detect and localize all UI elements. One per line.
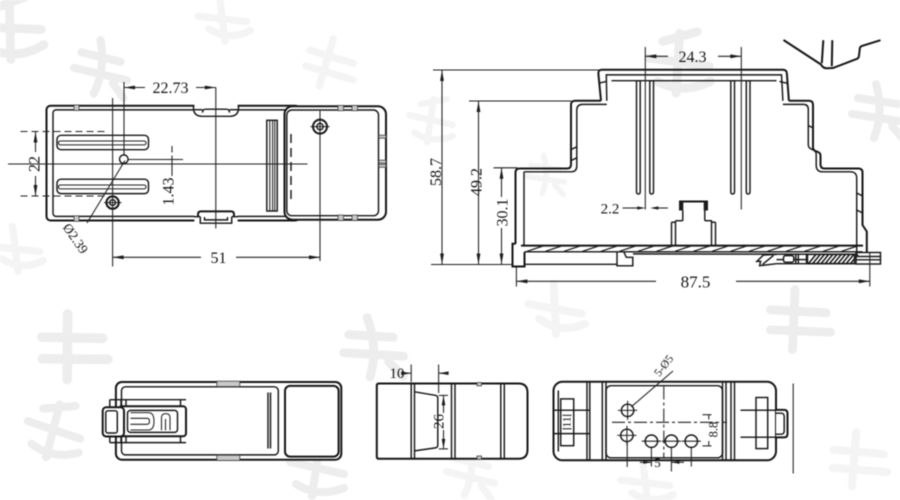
svg-text:49.2: 49.2 [469, 168, 486, 196]
svg-text:87.5: 87.5 [681, 273, 711, 292]
svg-text:1.43: 1.43 [161, 178, 178, 206]
svg-text:5: 5 [654, 455, 661, 470]
svg-text:2.2: 2.2 [601, 202, 620, 218]
svg-text:10: 10 [390, 366, 405, 382]
svg-text:30.1: 30.1 [495, 199, 512, 227]
svg-text:22: 22 [27, 156, 44, 172]
svg-text:11: 11 [562, 416, 574, 427]
svg-text:51: 51 [211, 250, 227, 267]
svg-text:26: 26 [432, 414, 448, 430]
svg-text:8.8: 8.8 [707, 422, 721, 438]
svg-text:22.73: 22.73 [153, 80, 189, 97]
svg-text:58.7: 58.7 [428, 158, 445, 186]
svg-text:24.3: 24.3 [679, 49, 707, 66]
